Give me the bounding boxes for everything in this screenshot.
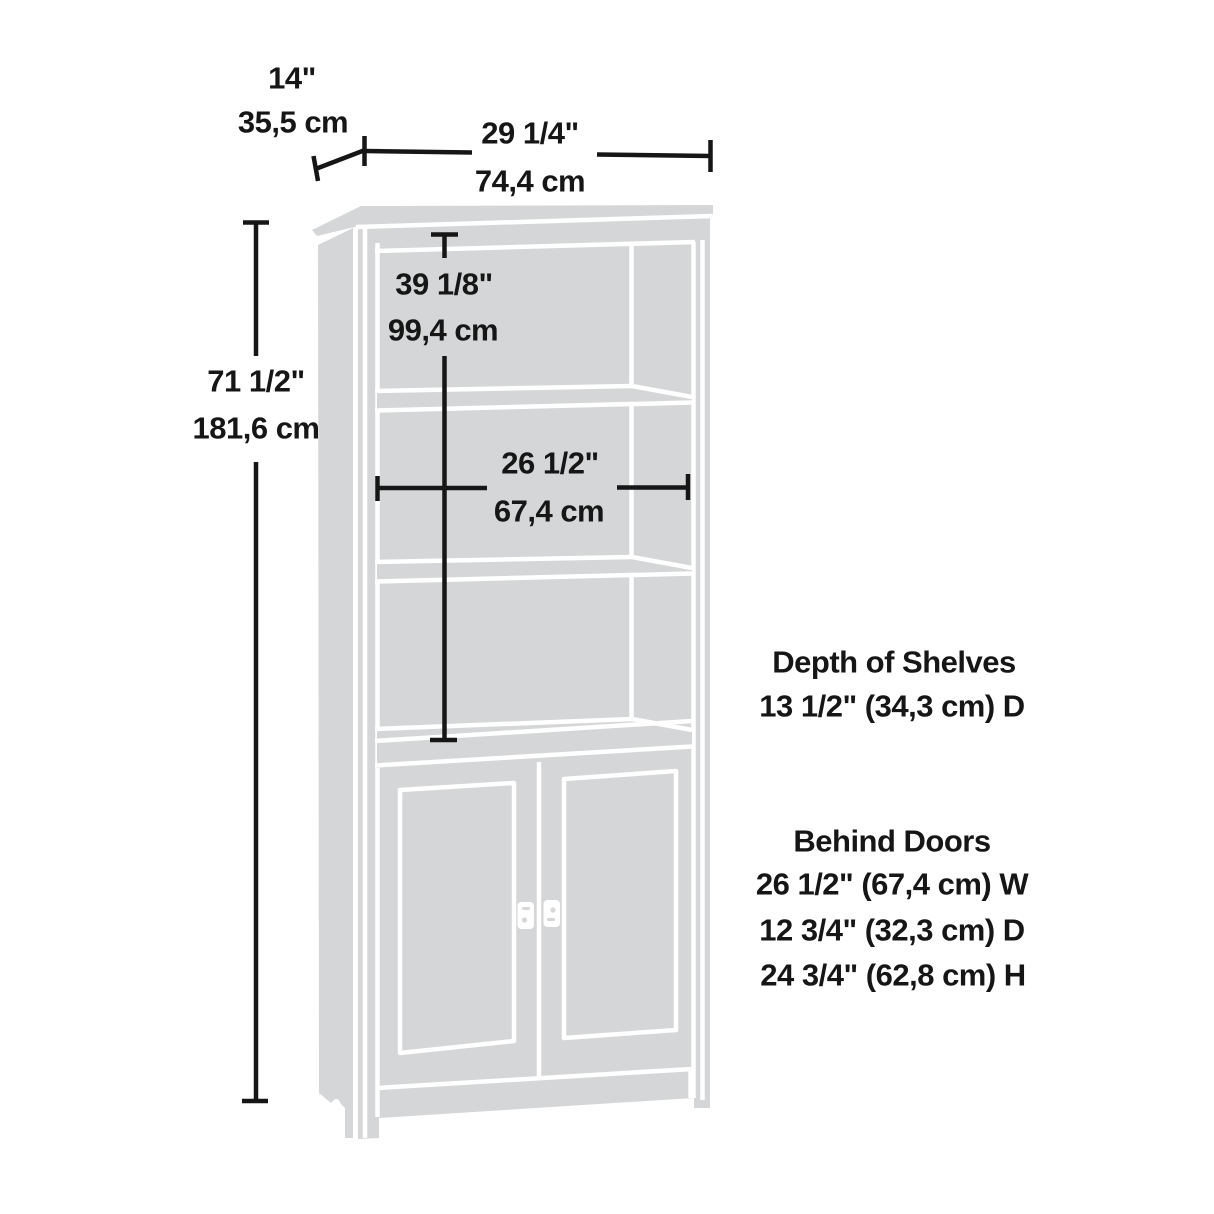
door-handle-left xyxy=(518,902,535,929)
height-cm-label: 181,6 cm xyxy=(193,413,320,444)
bookcase-line-drawing xyxy=(0,0,1214,1214)
dimension-diagram: 14" 35,5 cm 29 1/4" 74,4 cm 71 1/2" 181,… xyxy=(0,0,1214,1214)
side-panel xyxy=(318,228,353,1138)
width-cm-label: 74,4 cm xyxy=(475,166,585,197)
depth-cm-label: 35,5 cm xyxy=(238,107,348,138)
behind-doors-width: 26 1/2" (67,4 cm) W xyxy=(756,869,1028,900)
interior-width-inches-label: 26 1/2" xyxy=(501,448,598,479)
depth-inches-label: 14" xyxy=(268,63,316,94)
depth-dimension-line xyxy=(314,136,366,181)
behind-doors-depth: 12 3/4" (32,3 cm) D xyxy=(759,915,1024,946)
height-dimension-line xyxy=(242,223,269,1102)
shelf-depth-title: Depth of Shelves xyxy=(772,647,1016,678)
width-inches-label: 29 1/4" xyxy=(481,118,578,149)
opening-height-cm-label: 99,4 cm xyxy=(388,315,498,346)
front-face xyxy=(358,216,710,1139)
door-handle-right xyxy=(544,900,561,927)
height-inches-label: 71 1/2" xyxy=(207,366,304,397)
shelf-depth-value: 13 1/2" (34,3 cm) D xyxy=(759,691,1024,722)
interior-width-cm-label: 67,4 cm xyxy=(494,496,604,527)
behind-doors-title: Behind Doors xyxy=(793,826,990,857)
opening-height-inches-label: 39 1/8" xyxy=(395,269,492,300)
behind-doors-height: 24 3/4" (62,8 cm) H xyxy=(760,960,1025,991)
